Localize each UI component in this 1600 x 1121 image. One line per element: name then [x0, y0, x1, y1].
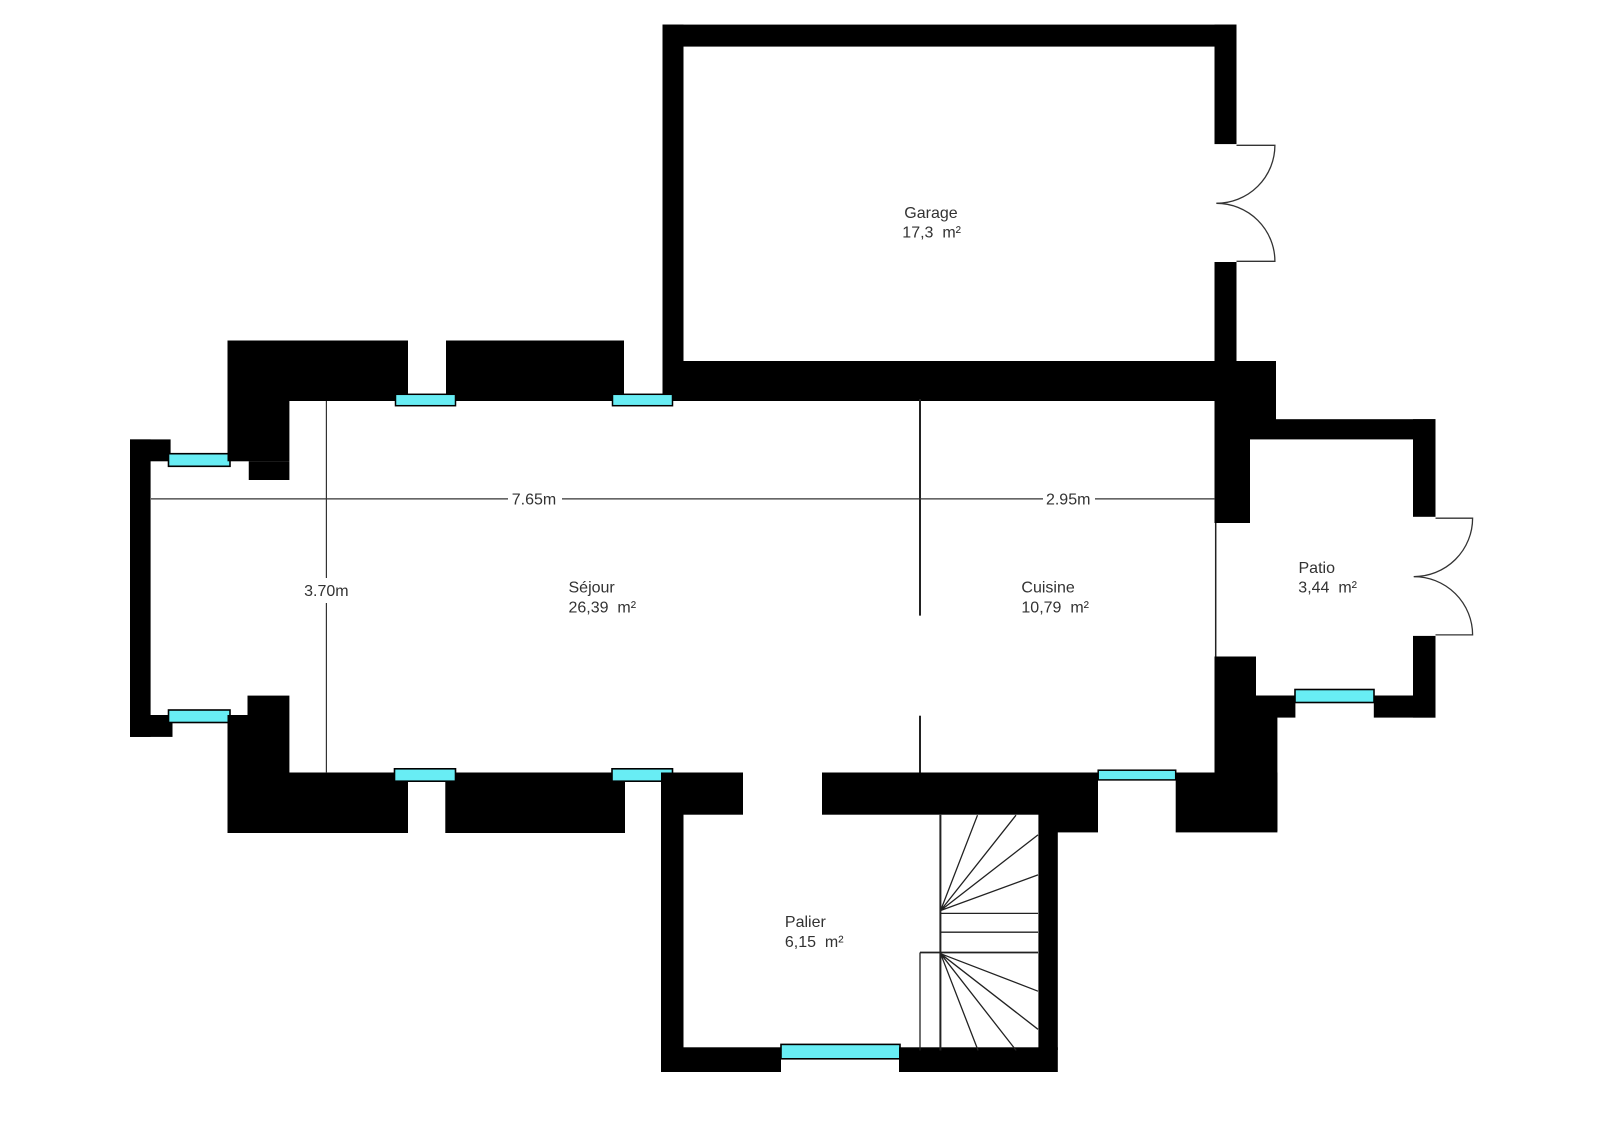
svg-text:26,39 m²: 26,39 m²	[569, 599, 637, 616]
svg-text:3.70m: 3.70m	[304, 583, 348, 600]
svg-text:17,3 m²: 17,3 m²	[902, 224, 961, 241]
svg-text:6,15 m²: 6,15 m²	[785, 934, 844, 951]
svg-text:Patio: Patio	[1299, 560, 1336, 577]
svg-text:Séjour: Séjour	[569, 580, 616, 597]
svg-text:7.65m: 7.65m	[512, 492, 556, 509]
svg-text:Cuisine: Cuisine	[1021, 580, 1074, 597]
svg-text:3,44 m²: 3,44 m²	[1298, 579, 1357, 596]
svg-text:10,79 m²: 10,79 m²	[1021, 599, 1089, 616]
svg-text:Palier: Palier	[785, 914, 827, 931]
svg-text:2.95m: 2.95m	[1046, 492, 1090, 509]
svg-text:Garage: Garage	[904, 205, 957, 222]
